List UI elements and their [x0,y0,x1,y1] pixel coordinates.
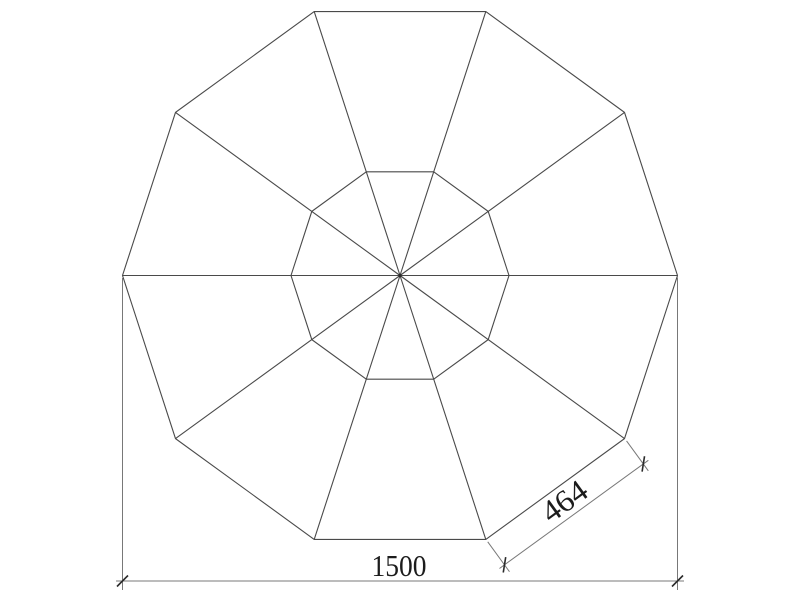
cad-drawing-page: 1500 464 [0,0,800,600]
dimension-panel-edge: 464 [479,433,653,576]
tick-far [636,456,651,471]
dimension-overall-width: 1500 [116,278,684,591]
plan-geometry [123,12,678,540]
dimension-text-overall-width: 1500 [372,548,427,583]
tick-near [497,557,512,572]
extension-line-near [488,542,510,572]
dimension-text-panel-edge: 464 [534,472,595,529]
center-point [398,274,401,277]
extension-line-far [627,441,649,471]
cad-canvas: 1500 464 [0,0,800,600]
